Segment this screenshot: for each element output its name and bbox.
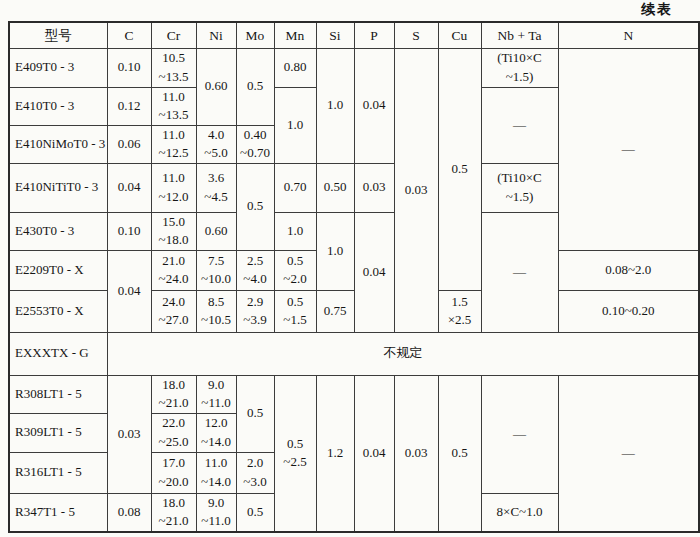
table-cell: 0.04 (354, 375, 394, 532)
table-cell: 1.0 (274, 212, 316, 250)
table-cell: 22.0 ~25.0 (151, 413, 196, 452)
table-cell: — (558, 48, 699, 250)
table-cell: 0.60 (196, 48, 236, 125)
table-cell: — (481, 375, 558, 493)
table-cell: 0.12 (107, 87, 151, 125)
table-cell: 9.0 ~11.0 (196, 375, 236, 413)
table-cell: 0.08~2.0 (558, 250, 699, 290)
header-row: 型号 C Cr Ni Mo Mn Si P S Cu Nb + Ta N (9, 22, 699, 48)
model-cell: R316LT1 - 5 (9, 452, 107, 493)
unspecified-cell: 不规定 (107, 332, 699, 375)
continued-table-label: 续表 (641, 1, 673, 19)
table-cell: — (558, 375, 699, 532)
table-cell: 11.0 ~14.0 (196, 452, 236, 493)
table-cell: (Ti10×C ~1.5) (481, 48, 558, 87)
model-cell: E2209T0 - X (9, 250, 107, 290)
model-cell: E410NiTiT0 - 3 (9, 163, 107, 212)
table-cell: 2.9 ~3.9 (236, 290, 274, 332)
table-cell: 11.0 ~12.0 (151, 163, 196, 212)
col-header-n: N (558, 22, 699, 48)
table-cell: 9.0 ~11.0 (196, 493, 236, 532)
model-cell: E430T0 - 3 (9, 212, 107, 250)
table-cell: 1.0 (316, 212, 354, 290)
table-cell: 0.5 (438, 48, 481, 290)
table-row: E409T0 - 3 0.10 10.5 ~13.5 0.60 0.5 0.80… (9, 48, 699, 87)
col-header-ni: Ni (196, 22, 236, 48)
table-cell: 1.2 (316, 375, 354, 532)
table-cell: 0.80 (274, 48, 316, 87)
model-cell: EXXXTX - G (9, 332, 107, 375)
table-cell: 0.50 (316, 163, 354, 212)
table-row: R308LT1 - 5 0.03 18.0 ~21.0 9.0 ~11.0 0.… (9, 375, 699, 413)
table-cell: 0.04 (107, 163, 151, 212)
table-cell: 3.6 ~4.5 (196, 163, 236, 212)
col-header-model: 型号 (9, 22, 107, 48)
table-cell: 0.08 (107, 493, 151, 532)
table-cell: 0.5 (236, 48, 274, 125)
table-cell: 0.5 ~2.0 (274, 250, 316, 290)
table-cell: — (481, 87, 558, 163)
table-cell: 0.03 (354, 163, 394, 212)
table-cell: 15.0 ~18.0 (151, 212, 196, 250)
model-cell: E409T0 - 3 (9, 48, 107, 87)
table-cell: (Ti10×C ~1.5) (481, 163, 558, 212)
model-cell: R347T1 - 5 (9, 493, 107, 532)
col-header-nb-ta: Nb + Ta (481, 22, 558, 48)
table-cell: 7.5 ~10.0 (196, 250, 236, 290)
table-cell: 0.04 (354, 212, 394, 332)
table-cell: 18.0 ~21.0 (151, 375, 196, 413)
table-cell: 18.0 ~21.0 (151, 493, 196, 532)
table-cell: 0.03 (394, 375, 438, 532)
table-cell: 1.5 ×2.5 (438, 290, 481, 332)
model-cell: E410NiMoT0 - 3 (9, 125, 107, 163)
col-header-mo: Mo (236, 22, 274, 48)
table-cell: 21.0 ~24.0 (151, 250, 196, 290)
col-header-c: C (107, 22, 151, 48)
col-header-cr: Cr (151, 22, 196, 48)
table-cell: 0.04 (107, 250, 151, 332)
table-cell: 0.04 (354, 48, 394, 163)
table-cell: 12.0 ~14.0 (196, 413, 236, 452)
table-cell: 1.0 (274, 87, 316, 163)
table-cell: 2.0 ~3.0 (236, 452, 274, 493)
table-cell: 2.5 ~4.0 (236, 250, 274, 290)
table-cell: 11.0 ~12.5 (151, 125, 196, 163)
table-cell: 0.5 (236, 163, 274, 250)
table-cell: 4.0 ~5.0 (196, 125, 236, 163)
composition-table: 型号 C Cr Ni Mo Mn Si P S Cu Nb + Ta N E40… (8, 21, 700, 533)
table-cell: 17.0 ~20.0 (151, 452, 196, 493)
table-cell: 0.10 (107, 212, 151, 250)
table-cell: 0.5 ~2.5 (274, 375, 316, 532)
table-cell: 0.06 (107, 125, 151, 163)
table-cell: 11.0 ~13.5 (151, 87, 196, 125)
col-header-s: S (394, 22, 438, 48)
table-cell: 24.0 ~27.0 (151, 290, 196, 332)
table-row: EXXXTX - G 不规定 (9, 332, 699, 375)
table-cell: 0.10~0.20 (558, 290, 699, 332)
model-cell: E410T0 - 3 (9, 87, 107, 125)
model-cell: R309LT1 - 5 (9, 413, 107, 452)
model-cell: E2553T0 - X (9, 290, 107, 332)
table-cell: 8×C~1.0 (481, 493, 558, 532)
table-cell: 0.40 ~0.70 (236, 125, 274, 163)
table-cell: 10.5 ~13.5 (151, 48, 196, 87)
table-cell: 0.5 (236, 493, 274, 532)
col-header-si: Si (316, 22, 354, 48)
table-cell: 0.75 (316, 290, 354, 332)
table-cell: 0.60 (196, 212, 236, 250)
col-header-mn: Mn (274, 22, 316, 48)
table-cell: 0.03 (394, 48, 438, 332)
table-cell: 0.5 ~1.5 (274, 290, 316, 332)
table-cell: 1.0 (316, 48, 354, 163)
model-cell: R308LT1 - 5 (9, 375, 107, 413)
table-cell: 8.5 ~10.5 (196, 290, 236, 332)
table-cell: 0.5 (236, 375, 274, 452)
table-cell: 0.10 (107, 48, 151, 87)
col-header-p: P (354, 22, 394, 48)
col-header-cu: Cu (438, 22, 481, 48)
table-cell: — (481, 212, 558, 332)
table-cell: 0.03 (107, 375, 151, 493)
table-cell: 0.5 (438, 375, 481, 532)
table-cell: 0.70 (274, 163, 316, 212)
